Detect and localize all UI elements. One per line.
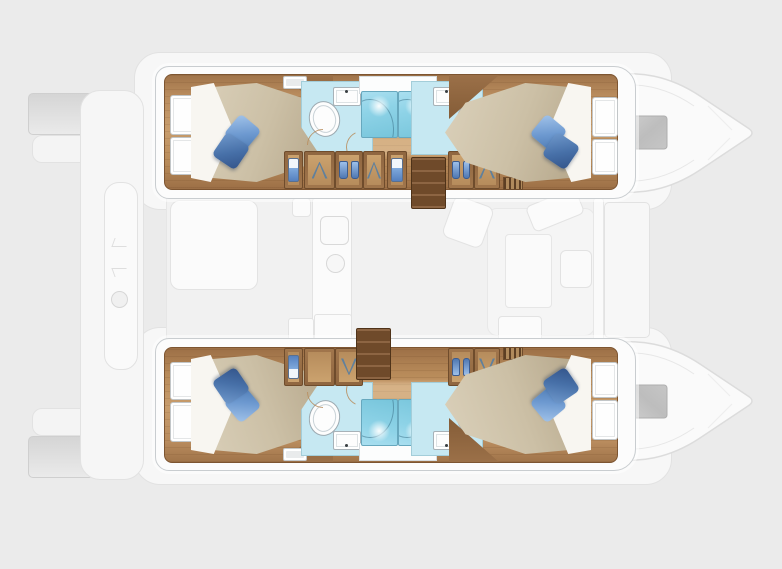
stove-icon [320, 216, 349, 245]
wardrobe-unit [304, 348, 335, 386]
hull-starboard [155, 338, 636, 471]
wardrobe-unit [363, 151, 385, 189]
foredeck [604, 202, 650, 338]
hull-starboard-interior [164, 347, 618, 463]
hull-port-interior [164, 74, 618, 190]
bed-forward [445, 355, 591, 454]
sink-icon [333, 431, 361, 450]
shower-stall [361, 399, 398, 446]
shirt-icon [351, 161, 360, 179]
hull-port [155, 66, 636, 199]
galley-sink-icon [326, 254, 345, 273]
galley-cabinet-b [314, 314, 352, 340]
companionway-stairs [411, 157, 446, 209]
winch-icon [111, 291, 128, 308]
window-panel [592, 97, 618, 137]
chair-icon [560, 250, 592, 288]
wardrobe-door [288, 355, 299, 379]
window-panel [592, 400, 618, 440]
hanger-icon [341, 359, 357, 376]
front-bulkhead [593, 198, 604, 342]
dinette-table [505, 234, 552, 308]
hanger-icon [367, 162, 381, 179]
bed-forward [445, 83, 591, 182]
wardrobe-unit [284, 151, 303, 189]
wardrobe-unit [387, 151, 407, 189]
speaker-icon [292, 198, 311, 217]
shirt-icon [339, 161, 348, 179]
sink-icon [333, 87, 361, 106]
galley-counter [170, 200, 258, 290]
wardrobe-door [391, 158, 403, 182]
wardrobe-unit [284, 348, 303, 386]
window-panel [592, 139, 618, 175]
catamaran-floorplan [0, 0, 782, 569]
tender-mark [111, 268, 129, 277]
wardrobe-unit [335, 151, 363, 189]
wardrobe-unit [304, 151, 335, 189]
hanger-icon [312, 162, 328, 179]
wardrobe-door [288, 158, 299, 182]
window-panel [592, 362, 618, 398]
companionway-stairs [356, 328, 391, 380]
